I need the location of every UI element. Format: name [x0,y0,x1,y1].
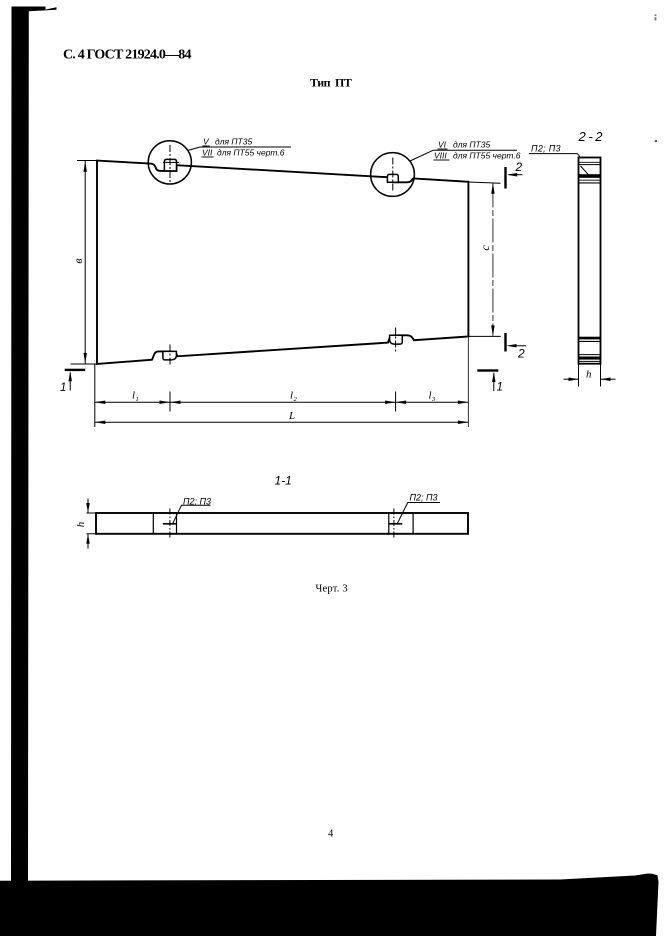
svg-text:1: 1 [136,396,139,403]
svg-text:h: h [75,521,87,527]
svg-text:VIII: VIII [434,151,447,161]
svg-text:1: 1 [60,382,66,394]
svg-text:1: 1 [497,382,503,394]
svg-text:для ПТ35: для ПТ35 [215,137,252,147]
svg-text:VI: VI [438,140,447,150]
svg-text:Тип ПТ: Тип ПТ [310,76,352,90]
svg-text:для ПТ55 черт.6: для ПТ55 черт.6 [453,151,521,161]
svg-text:1-1: 1-1 [275,474,292,488]
svg-text:Черт. 3: Черт. 3 [316,584,348,595]
svg-text:2: 2 [517,347,525,361]
svg-text:в: в [71,258,85,263]
svg-text:4: 4 [328,829,334,840]
svg-text:для ПТ35: для ПТ35 [453,140,490,150]
svg-text:с: с [478,245,492,251]
svg-text:для ПТ55 черт.6: для ПТ55 черт.6 [217,148,285,158]
svg-text:VII: VII [202,148,213,158]
svg-text:h: h [586,369,592,381]
svg-text:2: 2 [515,160,523,174]
svg-text:С. 4 ГОСТ 21924.0—84: С. 4 ГОСТ 21924.0—84 [63,48,191,63]
svg-text:L: L [288,410,295,422]
svg-text:П2; П3: П2; П3 [410,493,438,503]
svg-text:V: V [203,137,210,147]
svg-text:П2; П3: П2; П3 [531,144,561,154]
svg-text:2 - 2: 2 - 2 [578,129,604,144]
